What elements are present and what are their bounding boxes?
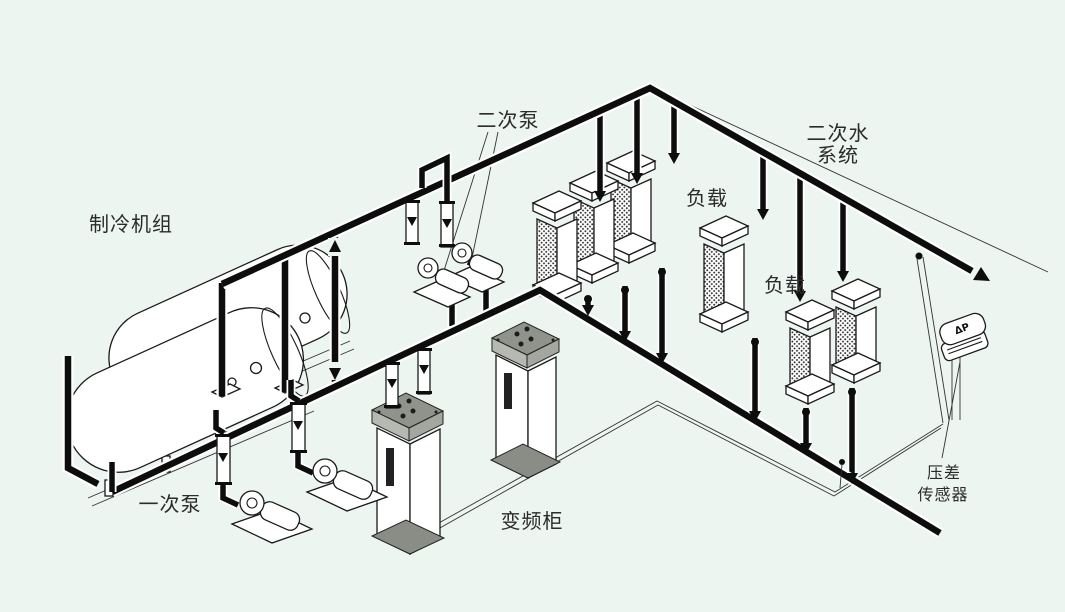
pump-volute — [240, 491, 264, 515]
label-primary-pump: 一次泵 — [139, 492, 202, 516]
filter-column — [290, 402, 307, 453]
load-heat-exchanger-single — [700, 216, 748, 332]
filter-column — [215, 434, 232, 485]
flex-column — [404, 200, 420, 245]
vfd-display-strip — [386, 448, 394, 486]
valve — [621, 286, 629, 294]
label-chiller-unit: 制冷机组 — [89, 212, 173, 236]
chiller-rear-nozzle — [300, 313, 310, 323]
flex-column — [439, 201, 455, 247]
pump-volute — [418, 258, 438, 278]
sensor-support-lines — [952, 356, 960, 420]
signal-cable-line-2 — [415, 405, 941, 542]
label-secondary-water-system-line1: 二次水 — [807, 121, 870, 145]
label-secondary-water-system-line2: 系统 — [817, 143, 859, 167]
strainer-column — [416, 348, 432, 394]
pump-volute — [452, 243, 472, 263]
label-load-2: 负载 — [764, 273, 806, 297]
diagram-canvas: ΔP 制冷机组 二次泵 二次水 系统 负载 负载 一次泵 变频柜 压差 传感器 — [0, 0, 1065, 612]
heat-exchanger — [832, 279, 880, 383]
valve — [802, 408, 810, 416]
chiller-front-nozzle — [251, 363, 262, 374]
label-vfd-cabinet: 变频柜 — [501, 509, 564, 533]
label-load-1: 负载 — [686, 186, 728, 210]
valve — [584, 295, 592, 303]
valve — [751, 338, 759, 346]
label-dp-sensor-line1: 压差 — [927, 463, 961, 482]
pump-volute — [313, 459, 337, 483]
vfd-cabinet-1 — [372, 393, 444, 554]
strainer-column — [384, 362, 400, 408]
vfd-display-strip — [504, 373, 512, 409]
label-dp-sensor-line2: 传感器 — [917, 485, 968, 504]
dp-sensor-label-leader — [942, 362, 960, 458]
signal-cable-line — [412, 401, 943, 538]
label-secondary-pump: 二次泵 — [477, 108, 540, 132]
valve — [658, 268, 666, 276]
flow-arrow-end — [973, 267, 990, 281]
secondary-pumps — [414, 243, 505, 307]
vfd-cabinet-2 — [491, 322, 560, 478]
heat-exchanger — [786, 300, 834, 404]
hvac-system-diagram: ΔP 制冷机组 二次泵 二次水 系统 负载 负载 一次泵 变频柜 压差 传感器 — [0, 0, 1065, 612]
valve — [848, 388, 856, 396]
pressure-tap — [916, 253, 923, 260]
